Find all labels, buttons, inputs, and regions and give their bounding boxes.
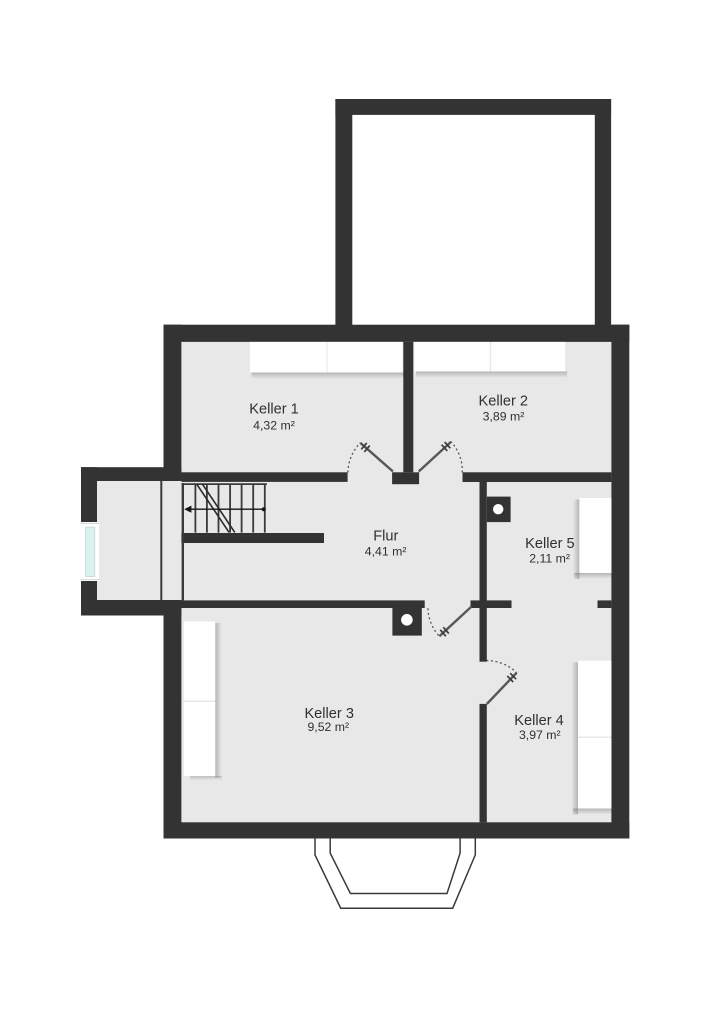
svg-text:Keller 4: Keller 4 bbox=[514, 713, 563, 729]
svg-text:3,89 m²: 3,89 m² bbox=[483, 409, 525, 423]
svg-text:3,97 m²: 3,97 m² bbox=[519, 728, 561, 742]
svg-text:Flur: Flur bbox=[373, 529, 398, 545]
svg-text:Keller 1: Keller 1 bbox=[249, 402, 298, 418]
svg-text:4,32 m²: 4,32 m² bbox=[253, 419, 295, 433]
svg-text:9,52 m²: 9,52 m² bbox=[307, 720, 349, 734]
svg-text:Keller 5: Keller 5 bbox=[525, 536, 574, 552]
svg-text:Keller 2: Keller 2 bbox=[479, 393, 528, 409]
svg-text:4,41 m²: 4,41 m² bbox=[365, 545, 407, 559]
svg-text:2,11 m²: 2,11 m² bbox=[529, 551, 570, 565]
